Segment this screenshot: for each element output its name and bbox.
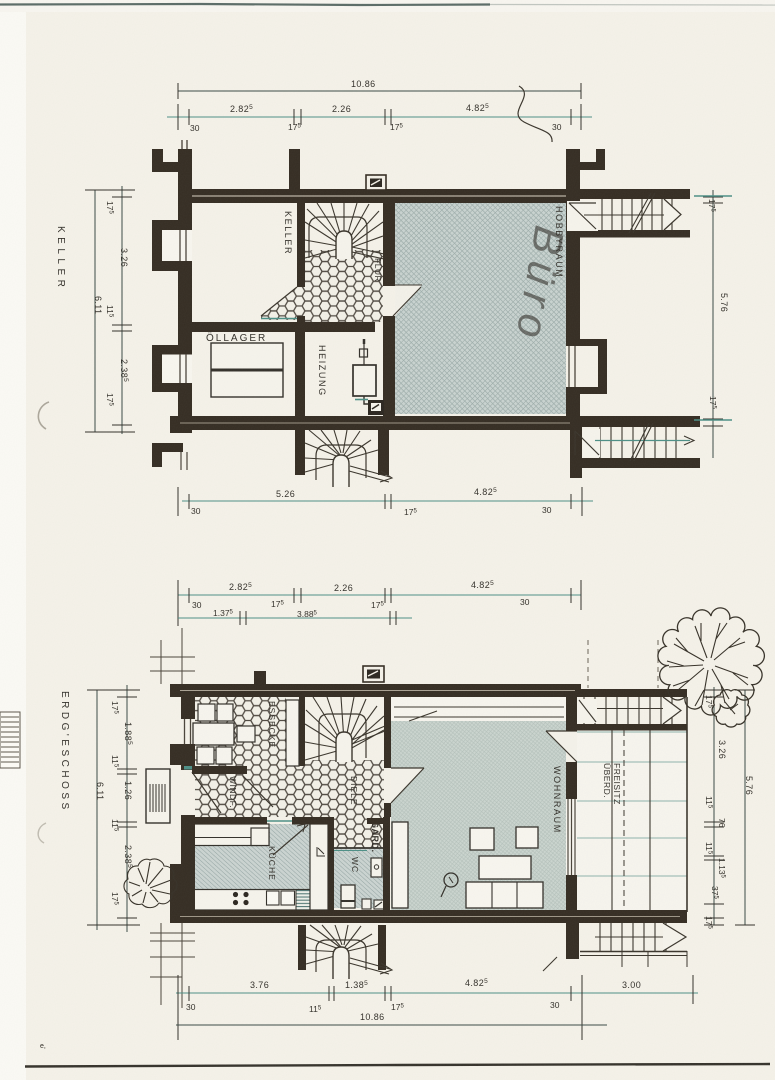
svg-text:e,: e, [40, 1043, 46, 1050]
